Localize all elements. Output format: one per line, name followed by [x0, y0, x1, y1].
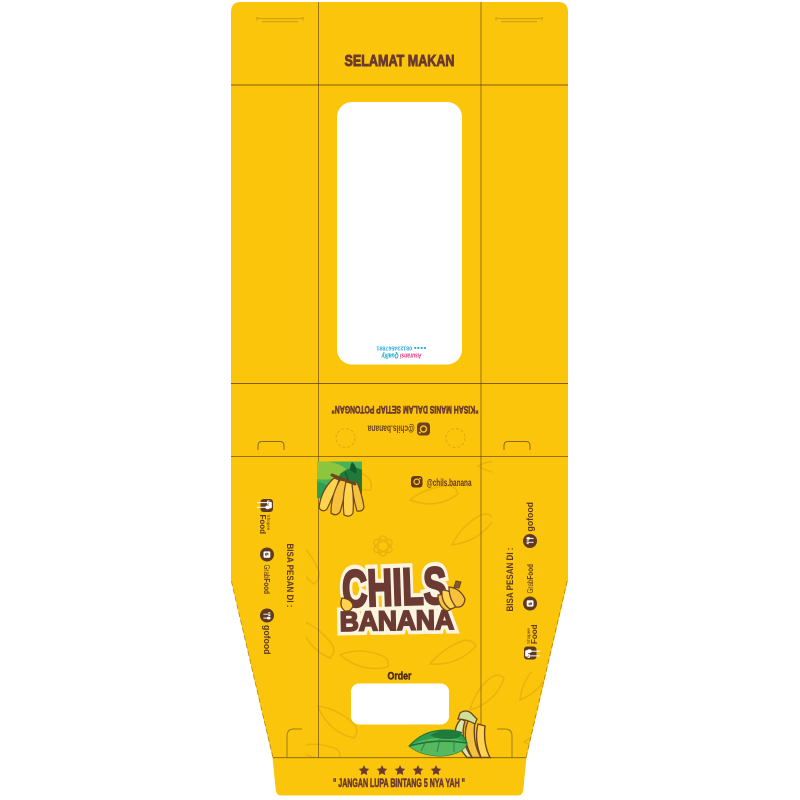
svg-text:GrabFood: GrabFood	[262, 565, 272, 595]
svg-text:@chils.banana: @chils.banana	[367, 423, 414, 434]
svg-text:"KISAH MANIS DALAM SETIAP POTO: "KISAH MANIS DALAM SETIAP POTONGAN"	[332, 403, 479, 415]
svg-text:BANANA: BANANA	[339, 605, 454, 638]
svg-text:BISA PESAN DI :: BISA PESAN DI :	[505, 548, 516, 612]
svg-text:" JANGAN LUPA BINTANG 5 NYA YA: " JANGAN LUPA BINTANG 5 NYA YAH "	[333, 778, 465, 790]
svg-text:Food: Food	[258, 515, 267, 535]
svg-text:@chils.banana: @chils.banana	[427, 478, 472, 489]
svg-text:gofood: gofood	[525, 502, 536, 532]
svg-text:BISA PESAN DI :: BISA PESAN DI :	[284, 544, 295, 608]
svg-text:Order: Order	[388, 671, 413, 683]
svg-text:Food: Food	[530, 624, 539, 644]
svg-text:●●●● 081234567891: ●●●● 081234567891	[376, 345, 426, 351]
svg-text:GrabFood: GrabFood	[525, 564, 535, 594]
svg-text:Asuransi Quality: Asuransi Quality	[381, 352, 423, 359]
svg-text:gofood: gofood	[261, 625, 272, 655]
svg-text:SELAMAT MAKAN: SELAMAT MAKAN	[345, 53, 455, 70]
